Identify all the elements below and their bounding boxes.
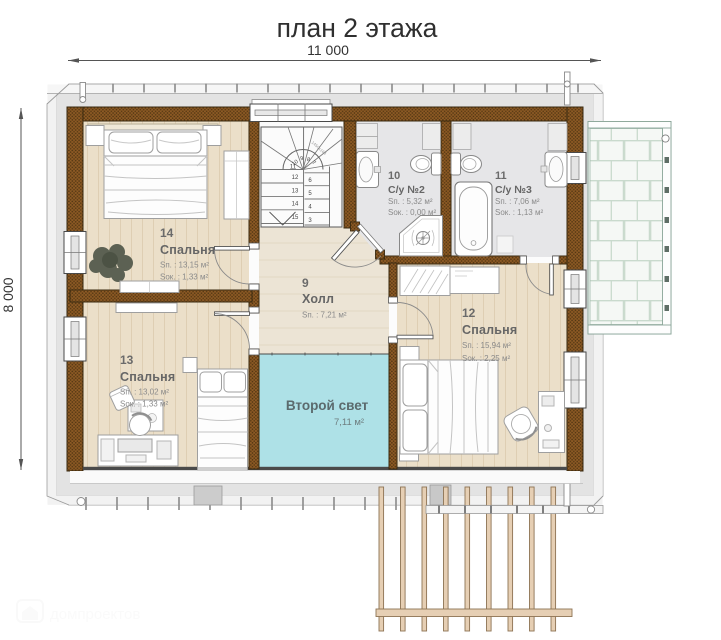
svg-text:Спальня: Спальня	[120, 370, 175, 384]
svg-text:14: 14	[160, 226, 174, 240]
svg-text:Sп. : 7,06 м²: Sп. : 7,06 м²	[495, 197, 540, 206]
svg-text:11 000: 11 000	[307, 42, 349, 58]
svg-text:Спальня: Спальня	[160, 243, 215, 257]
svg-text:Sп. : 5,32 м²: Sп. : 5,32 м²	[388, 197, 433, 206]
svg-text:12: 12	[462, 306, 476, 320]
svg-text:14: 14	[292, 202, 299, 208]
svg-text:Sп. : 15,94 м²: Sп. : 15,94 м²	[462, 341, 511, 350]
svg-text:домпроектов: домпроектов	[50, 606, 140, 623]
svg-text:Sок. : 1,13 м²: Sок. : 1,13 м²	[495, 208, 543, 217]
svg-text:9: 9	[302, 276, 309, 290]
svg-text:Sп. : 7,21 м²: Sп. : 7,21 м²	[302, 311, 347, 320]
svg-text:13: 13	[120, 353, 134, 367]
svg-text:С/у №2: С/у №2	[388, 184, 425, 196]
svg-text:12: 12	[292, 175, 299, 181]
svg-text:11: 11	[495, 170, 507, 182]
svg-text:10: 10	[388, 170, 400, 182]
svg-text:Sок. : 0,00 м²: Sок. : 0,00 м²	[388, 208, 436, 217]
svg-text:Sок. : 2,25 м²: Sок. : 2,25 м²	[462, 354, 510, 363]
svg-text:Sп. : 13,02 м²: Sп. : 13,02 м²	[120, 388, 169, 397]
svg-text:Спальня: Спальня	[462, 323, 517, 337]
svg-text:Sп. : 13,15 м²: Sп. : 13,15 м²	[160, 261, 209, 270]
svg-text:Холл: Холл	[302, 292, 334, 306]
svg-text:план 2 этажа: план 2 этажа	[277, 13, 438, 43]
svg-text:8 000: 8 000	[0, 277, 16, 312]
svg-text:Sок. : 1,33 м²: Sок. : 1,33 м²	[120, 400, 168, 409]
svg-text:15: 15	[292, 215, 299, 221]
svg-text:С/у №3: С/у №3	[495, 184, 532, 196]
svg-text:13: 13	[292, 188, 299, 194]
svg-text:Второй свет: Второй свет	[286, 398, 369, 413]
svg-text:Sок. : 1,33 м²: Sок. : 1,33 м²	[160, 273, 208, 282]
svg-text:7,11 м²: 7,11 м²	[334, 417, 364, 428]
